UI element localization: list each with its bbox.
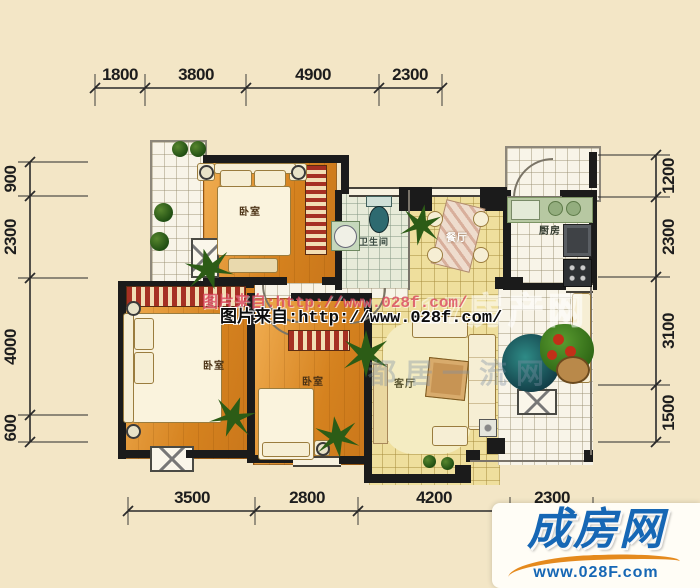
dim-bottom-3: 4200 [416, 488, 452, 507]
site-logo-url: www.028F.com [492, 564, 700, 582]
dim-right-2: 2300 [659, 219, 678, 255]
dim-top-4: 2300 [392, 65, 428, 84]
dim-bottom-2: 2800 [289, 488, 325, 507]
dim-top-1: 1800 [102, 65, 138, 84]
floor-plan-image: 卧室 卫生间 餐厅 厨房 卧室 卧室 客厅 1800 3800 4900 230… [0, 0, 700, 588]
dim-left-1: 900 [1, 166, 20, 193]
site-logo-name: 成房网 [492, 505, 700, 555]
dim-right-3: 3100 [659, 313, 678, 349]
dim-right-4: 1500 [659, 395, 678, 431]
dimension-left-lines [18, 157, 88, 447]
dim-right-1: 1200 [659, 158, 678, 194]
site-logo: 成房网 www.028F.com [492, 503, 700, 588]
faint-site-watermark-2: 都居一流网 [368, 352, 553, 392]
watermark-line-black: 图片来自:http://www.028f.com/ [220, 302, 502, 328]
dim-left-2: 2300 [1, 219, 20, 255]
dim-bottom-1: 3500 [174, 488, 210, 507]
dim-left-4: 600 [1, 415, 20, 442]
dim-top-2: 3800 [178, 65, 214, 84]
dim-left-3: 4000 [1, 329, 20, 365]
dim-top-3: 4900 [295, 65, 331, 84]
